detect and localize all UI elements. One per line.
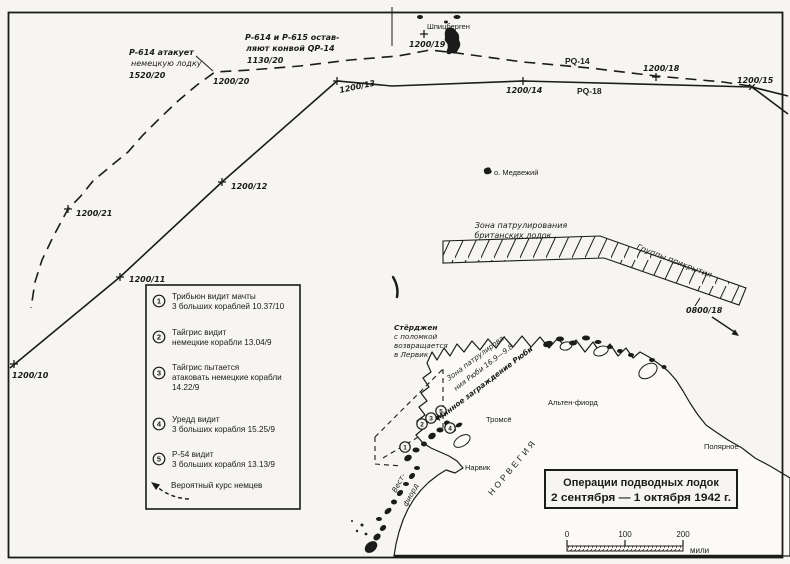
legend-3-line3: 14.22/9	[172, 383, 200, 392]
ts-1200-20: 1200/20	[213, 77, 250, 86]
legend-5-num: 5	[157, 455, 161, 464]
scale-100: 100	[618, 530, 632, 539]
ts-1200-19: 1200/19	[409, 40, 446, 49]
title-box: Операции подводных лодок 2 сентября — 1 …	[545, 470, 737, 508]
p614-p615-line2: ляют конвой QP-14	[246, 44, 335, 53]
place-polyarnoe: Полярное	[704, 442, 739, 451]
legend-5-line2: 3 больших корабля 13.13/9	[172, 460, 275, 469]
place-spitsbergen: Шпицберген	[427, 22, 470, 31]
convoy-pq18-label: PQ-18	[577, 86, 602, 96]
legend-1-num: 1	[157, 297, 161, 306]
marker-1: 1	[400, 442, 410, 452]
marker-1-num: 1	[403, 444, 407, 451]
p614-attack-time: 1520/20	[129, 71, 166, 80]
ts-1200-10: 1200/10	[12, 371, 49, 380]
legend-2-line1: Тайгрис видит	[172, 328, 227, 337]
legend-3-num: 3	[157, 369, 161, 378]
marker-3-num: 3	[429, 415, 433, 422]
legend-4-line2: 3 больших корабля 15.25/9	[172, 425, 275, 434]
legend-2-line2: немецкие корабли 13.04/9	[172, 338, 272, 347]
marker-4: 4	[445, 423, 455, 433]
ts-1200-18: 1200/18	[643, 64, 680, 73]
map-title-line1: Операции подводных лодок	[563, 477, 719, 489]
ts-1200-12: 1200/12	[231, 182, 268, 191]
p614-attack-line2: немецкую лодку	[131, 59, 202, 68]
place-narvik: Нарвик	[465, 463, 491, 472]
ts-1200-11: 1200/11	[129, 275, 165, 284]
p614-p615-time: 1130/20	[247, 56, 284, 65]
sturgeon-line4: в Лервик	[394, 350, 429, 359]
ts-1200-15: 1200/15	[737, 76, 774, 85]
sturgeon-line1: Стёрджен	[394, 323, 437, 332]
legend-box: 1 Трибьюн видит мачты 3 больших кораблей…	[146, 285, 300, 509]
marker-2: 2	[417, 419, 427, 429]
probable-course-label: Вероятный курс немцев	[171, 481, 262, 490]
marker-2-num: 2	[420, 421, 424, 428]
p614-p615-line1: Р-614 и Р-615 остав-	[245, 33, 339, 42]
legend-1-line1: Трибьюн видит мачты	[172, 292, 256, 301]
legend-1-line2: 3 больших кораблей 10.37/10	[172, 302, 285, 311]
british-zone-line1: Зона патрулирования	[475, 221, 568, 230]
legend-2-num: 2	[157, 333, 161, 342]
scale-0: 0	[565, 530, 570, 539]
ts-1200-14: 1200/14	[506, 86, 543, 95]
map-title-line2: 2 сентября — 1 октября 1942 г.	[551, 492, 731, 504]
legend-3-line2: атаковать немецкие корабли	[172, 373, 282, 382]
british-zone-line2: британских лодок	[475, 231, 552, 240]
ts-0800-18: 0800/18	[686, 306, 723, 315]
place-tromso: Тромсё	[486, 415, 512, 424]
legend-4-line1: Уредд видит	[172, 415, 220, 424]
legend-3-line1: Тайгрис пытается	[172, 363, 239, 372]
scale-200: 200	[676, 530, 690, 539]
ts-1200-21: 1200/21	[76, 209, 112, 218]
naval-operations-map: 1 2 3 5 4	[0, 0, 790, 564]
marker-4-num: 4	[448, 425, 452, 432]
legend-5-line1: Р-54 видит	[172, 450, 214, 459]
place-alten-fjord: Альтен-фиорд	[548, 398, 598, 407]
map-page: 1 2 3 5 4	[0, 0, 790, 564]
p614-attack-line1: Р-614 атакует	[129, 48, 195, 57]
scale-unit: мили	[690, 546, 709, 555]
place-bear-island: о. Медвежий	[494, 168, 538, 177]
sturgeon-line2: с поломкой	[394, 332, 437, 341]
sturgeon-line3: возвращается	[394, 341, 448, 350]
convoy-pq14-label: PQ-14	[565, 56, 590, 66]
